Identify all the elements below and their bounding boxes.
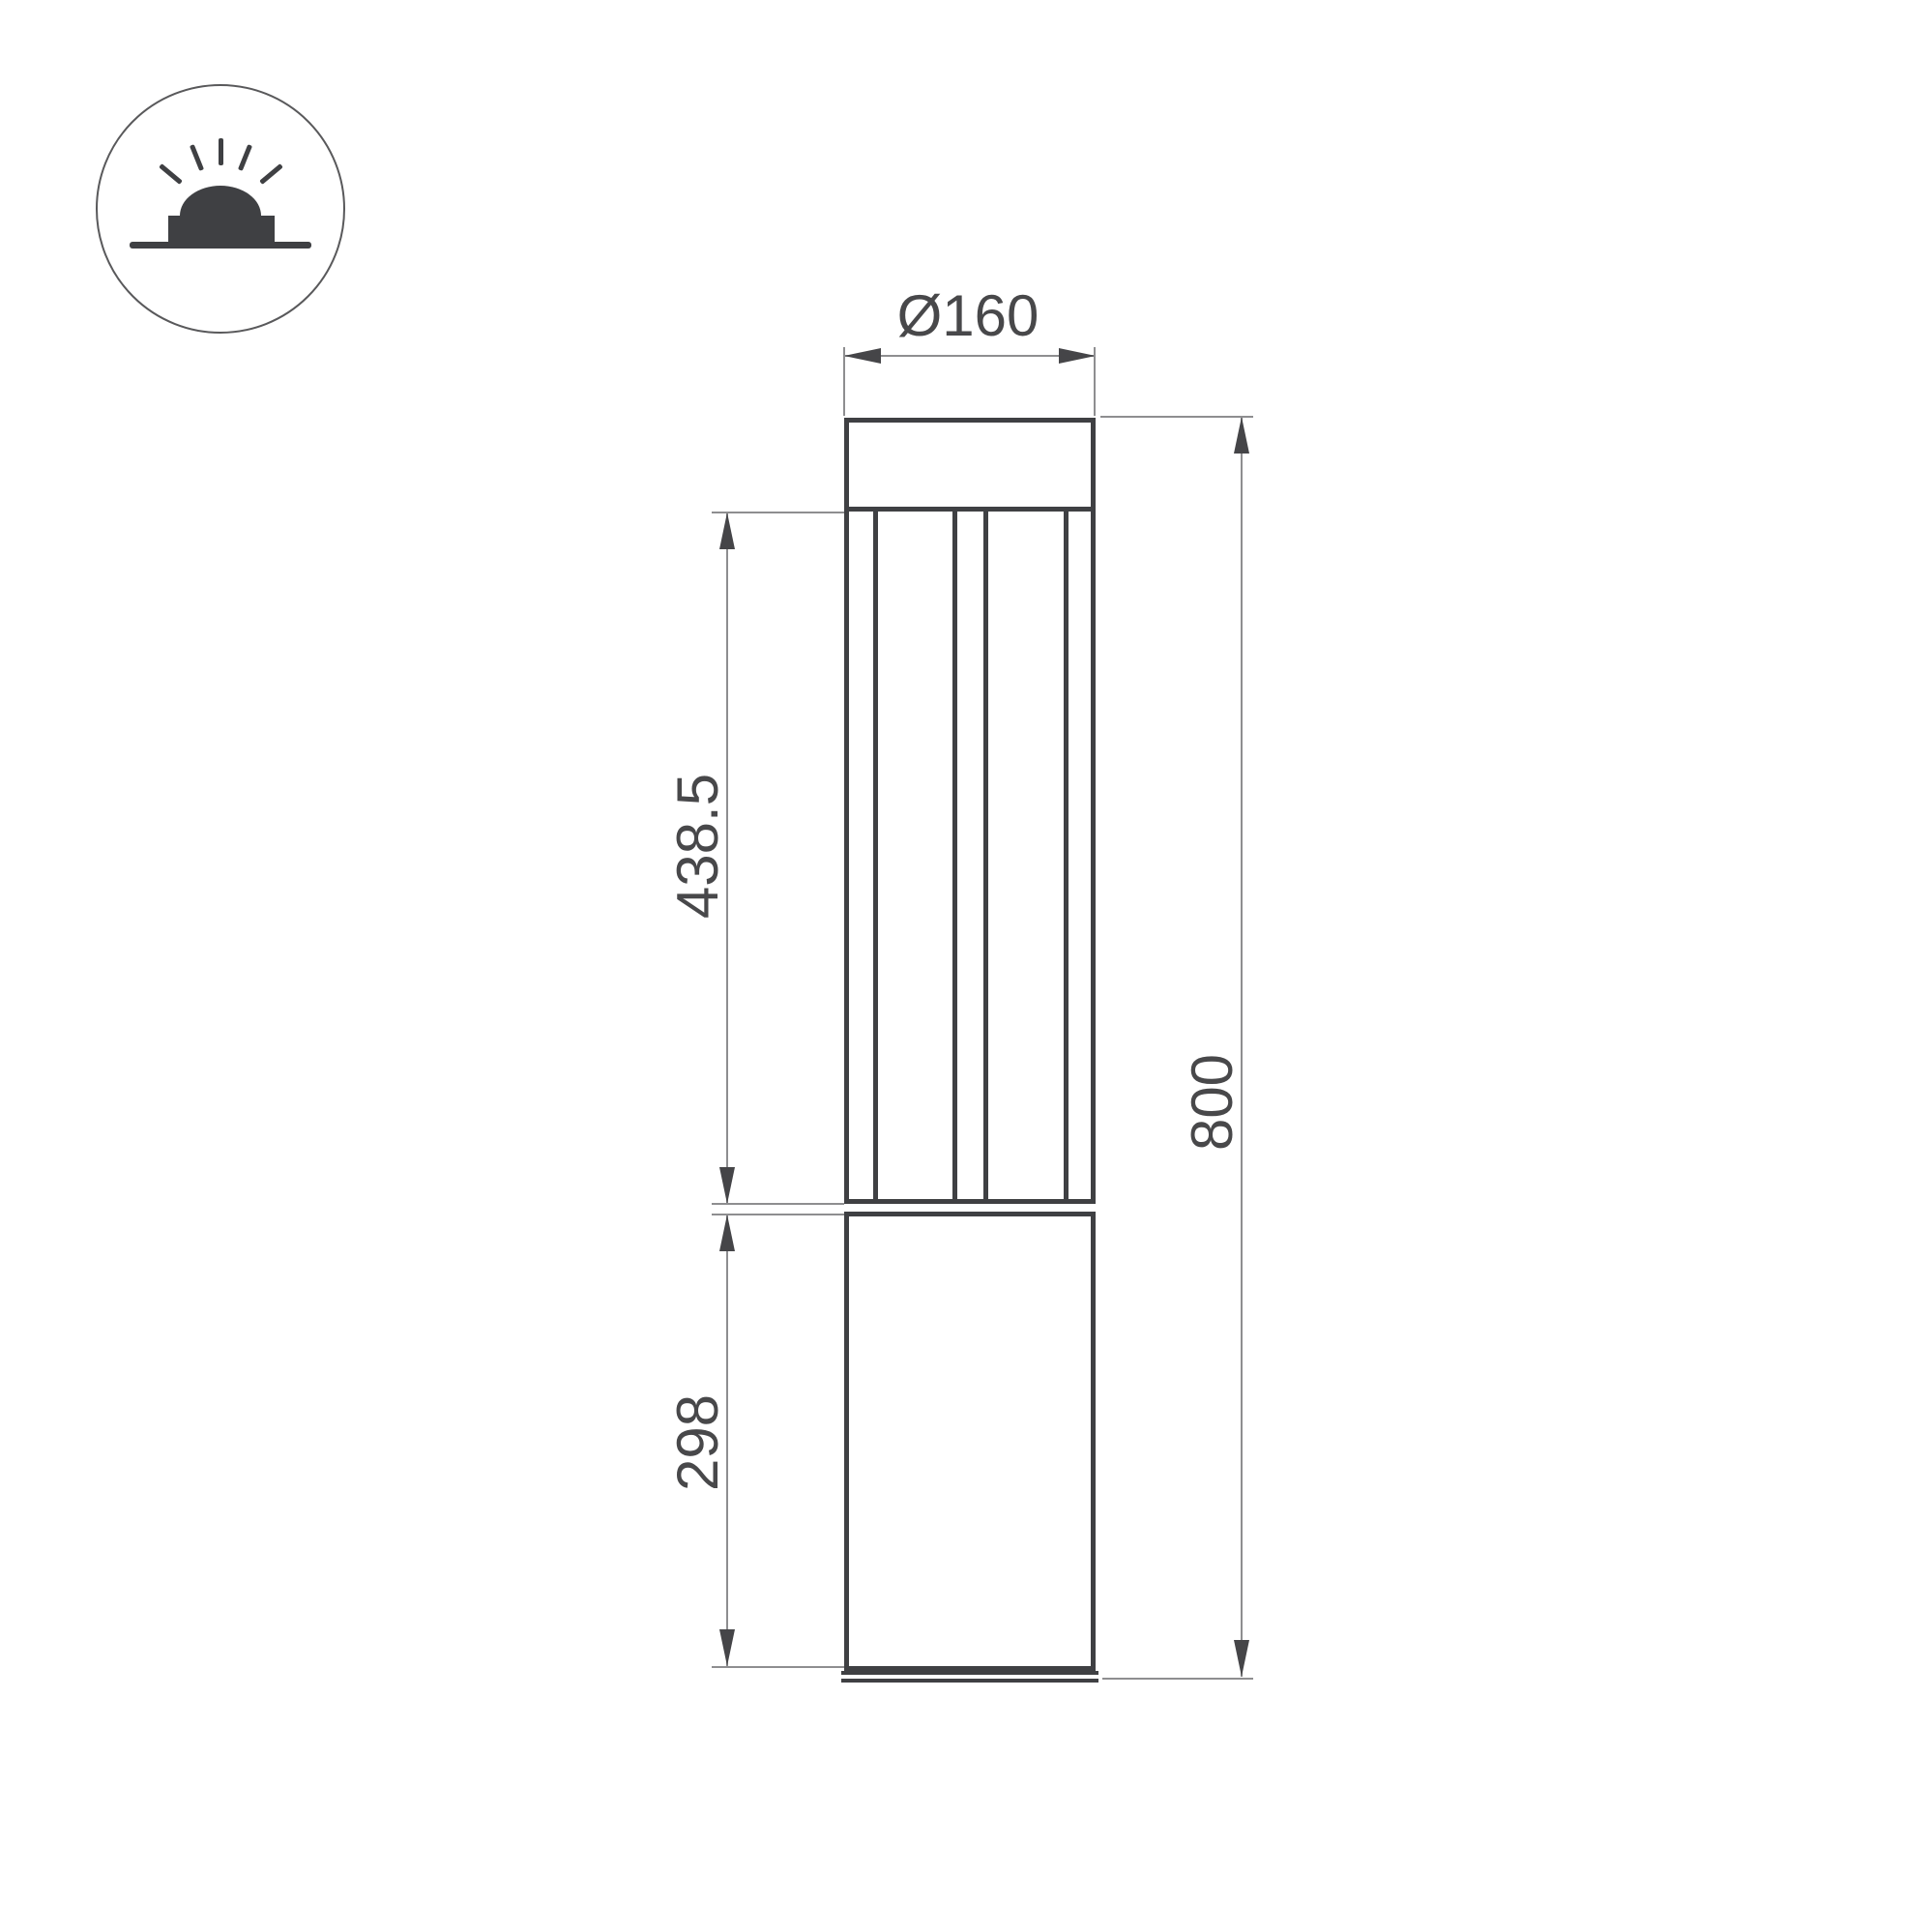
dimension-arrow-down [719,1629,735,1666]
extension-line [843,347,845,416]
technical-drawing-canvas: Ø160 438.5 298 800 [0,0,1932,1932]
bollard-top-cap [844,418,1096,512]
dimension-line [1241,417,1243,1677]
bollard-base-plate [841,1671,1098,1683]
bollard-body-section [844,1212,1096,1671]
dimension-arrow-down [1234,1640,1249,1677]
dimension-arrow-left [844,348,881,364]
lower-section-dimension-label: 298 [669,1394,727,1491]
extension-line [712,512,844,513]
total-height-dimension-label: 800 [1184,1054,1242,1151]
dimension-line [844,355,1096,357]
dimension-arrow-up [719,512,735,549]
lamp-slat-divider [952,512,957,1199]
dimension-line [726,512,728,1204]
upper-section-dimension-label: 438.5 [669,774,727,919]
extension-line [712,1666,844,1668]
extension-line [712,1203,844,1205]
dimension-arrow-up [719,1215,735,1251]
dimension-arrow-right [1059,348,1096,364]
bollard-lamp-section [844,512,1096,1204]
lamp-slat-divider [1064,512,1068,1199]
extension-line [1100,416,1253,418]
dimension-line [726,1215,728,1666]
lamp-slat-divider [873,512,878,1199]
extension-line [1094,347,1096,416]
extension-line [1102,1678,1253,1680]
extension-line [712,1214,844,1215]
dimension-arrow-up [1234,417,1249,454]
diameter-dimension-label: Ø160 [897,287,1039,345]
dimension-arrow-down [719,1167,735,1204]
lamp-slat-divider [983,512,988,1199]
